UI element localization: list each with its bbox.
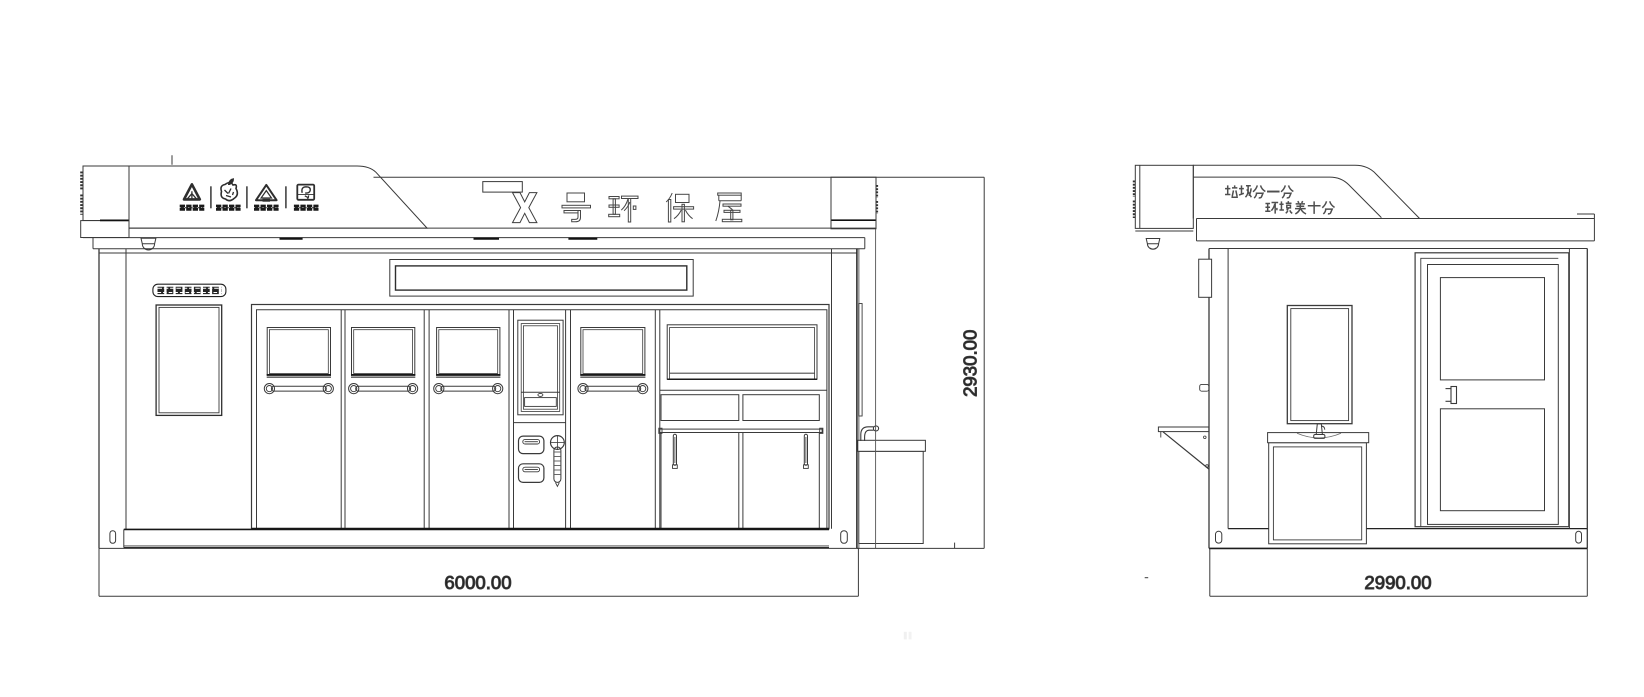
svg-text:2930.00: 2930.00 (959, 330, 980, 397)
svg-text:2990.00: 2990.00 (1364, 572, 1431, 593)
svg-text:6000.00: 6000.00 (444, 572, 511, 593)
